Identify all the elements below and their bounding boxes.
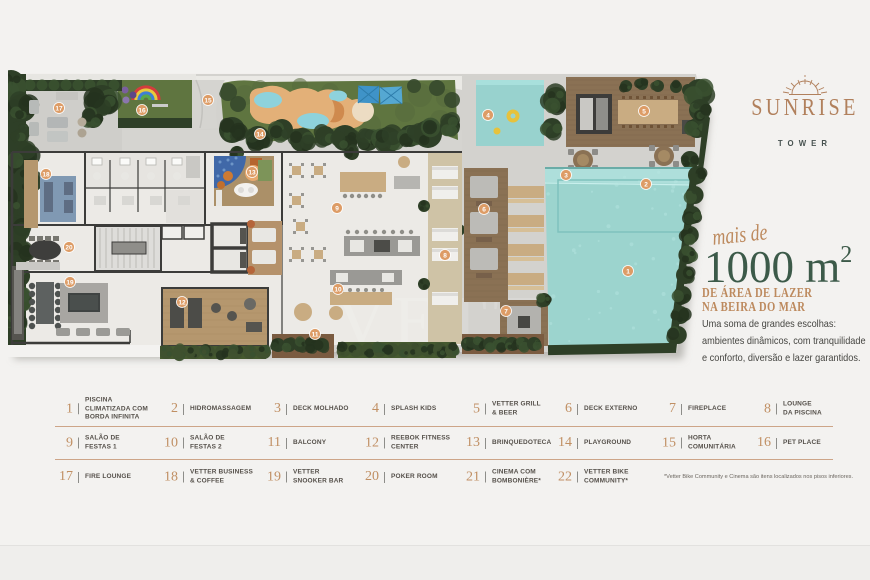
svg-text:9: 9 — [335, 205, 339, 212]
svg-text:14: 14 — [256, 131, 264, 138]
svg-text:1: 1 — [626, 268, 630, 275]
svg-text:5: 5 — [642, 108, 646, 115]
svg-text:20: 20 — [65, 244, 73, 251]
svg-text:12: 12 — [178, 299, 186, 306]
svg-text:6: 6 — [482, 206, 486, 213]
svg-text:10: 10 — [334, 286, 342, 293]
svg-text:8: 8 — [443, 252, 447, 259]
svg-text:13: 13 — [248, 169, 256, 176]
svg-text:16: 16 — [138, 107, 146, 114]
svg-text:4: 4 — [486, 112, 490, 119]
svg-text:7: 7 — [504, 308, 508, 315]
svg-text:2: 2 — [644, 181, 648, 188]
svg-text:11: 11 — [312, 331, 319, 338]
svg-text:19: 19 — [66, 279, 74, 286]
svg-text:15: 15 — [204, 97, 212, 104]
svg-text:3: 3 — [564, 172, 568, 179]
svg-text:18: 18 — [42, 171, 50, 178]
svg-text:17: 17 — [55, 105, 63, 112]
